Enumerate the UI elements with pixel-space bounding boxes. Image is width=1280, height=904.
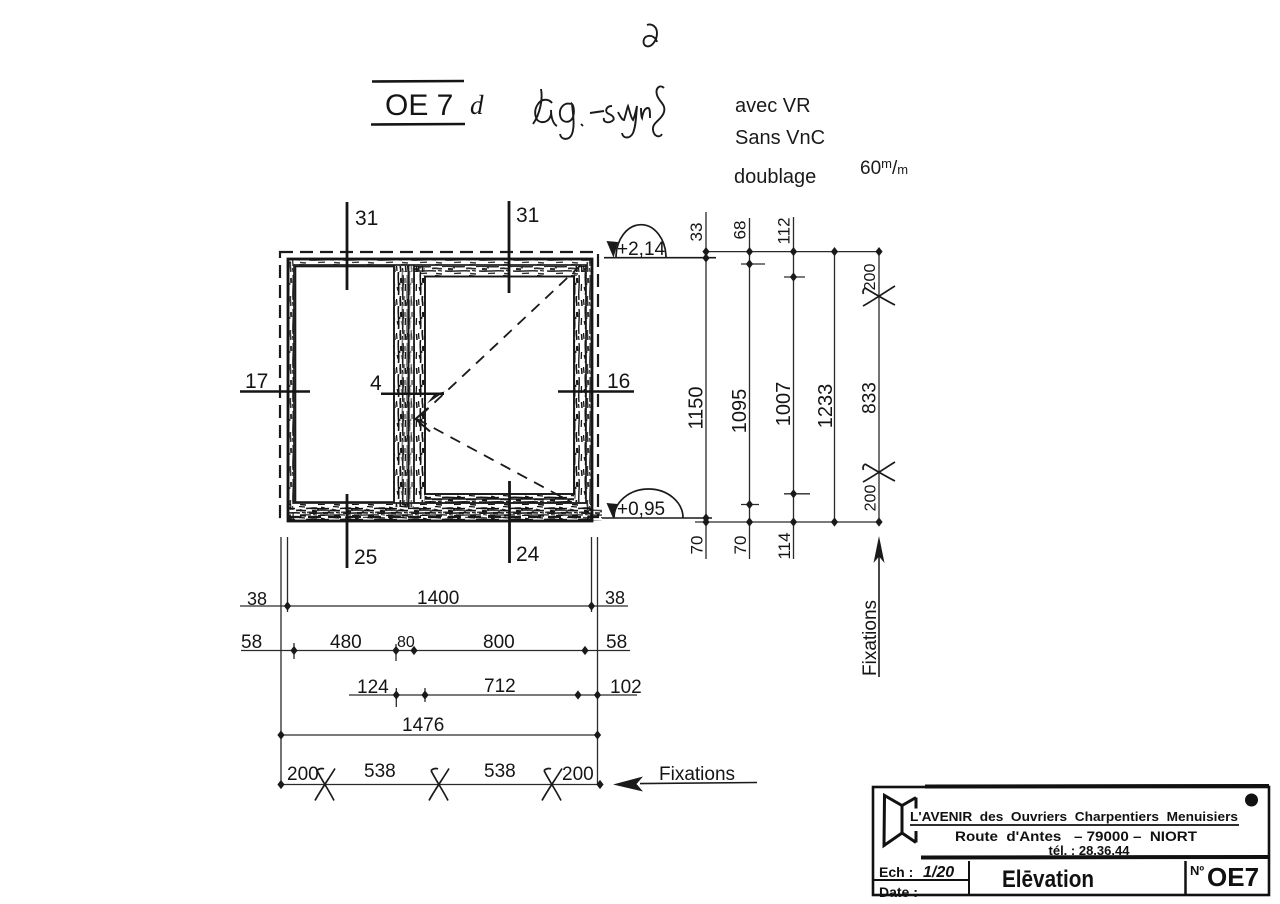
svg-text:1233: 1233 [815,384,837,429]
svg-text:70: 70 [688,536,707,555]
svg-text:112: 112 [775,217,794,244]
svg-text:200: 200 [562,764,594,785]
svg-text:33: 33 [687,223,706,242]
svg-text:80: 80 [397,634,415,651]
svg-text:Sans VnC: Sans VnC [735,127,825,149]
svg-text:200: 200 [863,485,880,512]
svg-text:24: 24 [516,543,540,566]
svg-text:16: 16 [607,370,630,393]
svg-text:Route d'Antes – 79000 – NI: Route d'Antes – 79000 – NIORT [955,829,1198,844]
svg-text:1/20: 1/20 [923,864,954,881]
svg-text:38: 38 [605,588,625,608]
svg-text:833: 833 [860,382,881,414]
svg-text:1400: 1400 [417,588,459,609]
svg-text:OE 7: OE 7 [385,89,453,122]
svg-text:Fixations: Fixations [860,600,881,676]
svg-text:480: 480 [330,632,362,653]
svg-text:L'AVENIR des Ouvriers Charp: L'AVENIR des Ouvriers Charpentiers Menui… [910,810,1238,824]
svg-text:31: 31 [355,207,378,230]
svg-text:Nº: Nº [1190,863,1204,878]
svg-text:doublage: doublage [734,166,816,188]
svg-text:538: 538 [484,761,516,782]
svg-text:17: 17 [245,370,268,393]
svg-text:OE7: OE7 [1207,862,1259,892]
svg-text:124: 124 [357,677,389,698]
svg-text:102: 102 [610,677,642,698]
svg-text:200: 200 [862,264,879,291]
svg-text:Date :: Date : [879,884,918,900]
svg-text:114: 114 [775,532,794,559]
svg-text:1476: 1476 [402,715,444,736]
svg-text:538: 538 [364,761,396,782]
svg-text:Ech :: Ech : [879,864,913,880]
svg-text:712: 712 [484,676,516,697]
svg-text:58: 58 [606,632,627,653]
svg-text:Fixations: Fixations [659,764,735,785]
svg-text:4: 4 [370,372,382,395]
svg-text:800: 800 [483,632,515,653]
svg-text:avec VR: avec VR [735,95,811,117]
svg-text:d: d [470,90,484,120]
svg-text:1095: 1095 [729,389,751,434]
svg-text:+2,14: +2,14 [617,239,666,260]
svg-text:68: 68 [731,221,750,240]
svg-text:1007: 1007 [773,382,795,427]
svg-text:Elēvation: Elēvation [1002,866,1094,893]
svg-text:58: 58 [241,632,262,653]
svg-text:25: 25 [354,546,377,569]
svg-text:1150: 1150 [686,386,708,429]
svg-text:70: 70 [731,536,750,555]
svg-text:31: 31 [516,204,539,227]
svg-text:tél. : 28.36.44: tél. : 28.36.44 [1049,843,1131,858]
svg-text:200: 200 [287,764,319,785]
svg-text:38: 38 [247,589,267,609]
svg-text:+0,95: +0,95 [617,499,665,520]
